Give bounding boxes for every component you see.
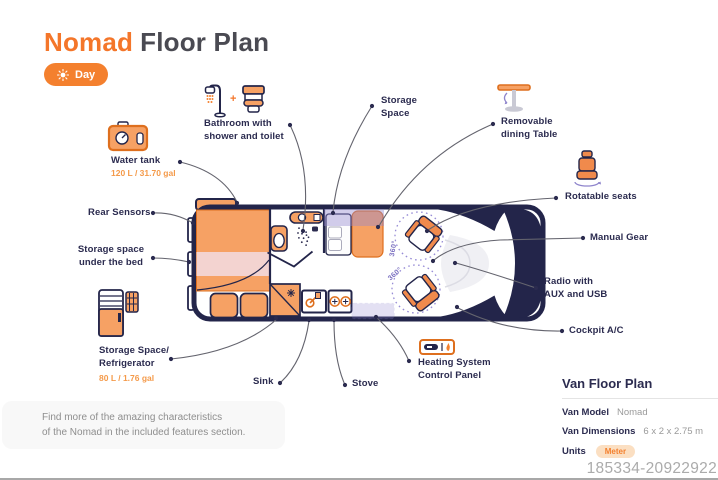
shower-icon: [202, 84, 226, 118]
callout-storage-under-bed: [153, 258, 189, 262]
label-bathroom: Bathroom with shower and toilet: [204, 118, 284, 143]
footer-note-line1: Find more of the amazing characteristics: [42, 410, 285, 425]
plus-sign: +: [230, 84, 236, 114]
bed: [197, 210, 271, 291]
brand-name: Nomad: [44, 27, 133, 57]
spec-row-model: Van Model Nomad: [562, 407, 718, 418]
refrigerator-icon: [97, 288, 139, 340]
page-title: NomadFloor Plan: [44, 27, 269, 58]
heating-panel-icon: [419, 339, 455, 355]
van-model-value: Nomad: [617, 407, 648, 418]
stove-zone: [329, 291, 352, 313]
spec-row-dimensions: Van Dimensions 6 x 2 x 2.75 m: [562, 426, 718, 437]
day-mode-button[interactable]: Day: [44, 63, 108, 86]
units-meter-badge[interactable]: Meter: [596, 445, 635, 458]
dining-zone: [324, 209, 384, 257]
refrigerator-zone: [270, 284, 300, 316]
label-heating: Heating System Control Panel: [418, 357, 491, 382]
label-cockpit-ac: Cockpit A/C: [569, 325, 624, 338]
callout-fridge: [171, 319, 277, 359]
toilet-zone: [271, 226, 287, 251]
label-manual-gear: Manual Gear: [590, 232, 648, 245]
spec-row-units: Units Meter: [562, 445, 718, 458]
label-stove: Stove: [352, 378, 378, 391]
spec-panel-title: Van Floor Plan: [562, 376, 718, 391]
value-water-tank-capacity: 120 L / 31.70 gal: [111, 168, 176, 178]
spec-divider: [562, 398, 718, 399]
van-dimensions-value: 6 x 2 x 2.75 m: [643, 426, 703, 437]
label-rotatable-seats: Rotatable seats: [565, 191, 637, 204]
label-water-tank: Water tank: [111, 155, 160, 168]
callout-storage-space: [333, 106, 372, 212]
nomad-floorplan-page: { "title": {"brand": "Nomad", "rest": "F…: [0, 0, 718, 480]
label-storage-space: Storage Space: [381, 95, 417, 120]
spec-panel: Van Floor Plan Van Model Nomad Van Dimen…: [562, 376, 718, 458]
footer-note-line2: of the Nomad in the included features se…: [42, 425, 285, 440]
callout-water-tank: [180, 162, 237, 202]
sink-zone: [302, 291, 326, 313]
toilet-icon: [240, 84, 267, 115]
storage-under-bed-zone: [197, 252, 271, 276]
sun-icon: [57, 69, 69, 81]
value-fridge-capacity: 80 L / 1.76 gal: [99, 373, 154, 383]
water-tank-icon: [106, 121, 150, 153]
label-fridge: Storage Space/ Refrigerator: [99, 345, 169, 370]
callout-rear-sensors: [153, 213, 193, 223]
day-mode-label: Day: [75, 69, 95, 81]
heating-panel-zone: [352, 304, 394, 319]
label-radio: Radio with AUX and USB: [544, 276, 607, 301]
label-dining-table: Removable dining Table: [501, 116, 557, 141]
label-rear-sensors: Rear Sensors: [88, 207, 150, 220]
callout-sink: [280, 321, 309, 383]
watermark: 185334-20922922: [587, 460, 717, 478]
label-storage-under-bed: Storage space under the bed: [70, 244, 152, 269]
callout-stove: [334, 321, 345, 385]
title-rest: Floor Plan: [140, 27, 269, 57]
bathroom-icons: +: [202, 84, 267, 118]
label-sink: Sink: [253, 376, 273, 389]
swivel-seat-icon: [572, 150, 602, 190]
callout-heating: [377, 318, 409, 361]
dining-table-icon: [495, 82, 533, 114]
footer-note: Find more of the amazing characteristics…: [2, 401, 285, 449]
